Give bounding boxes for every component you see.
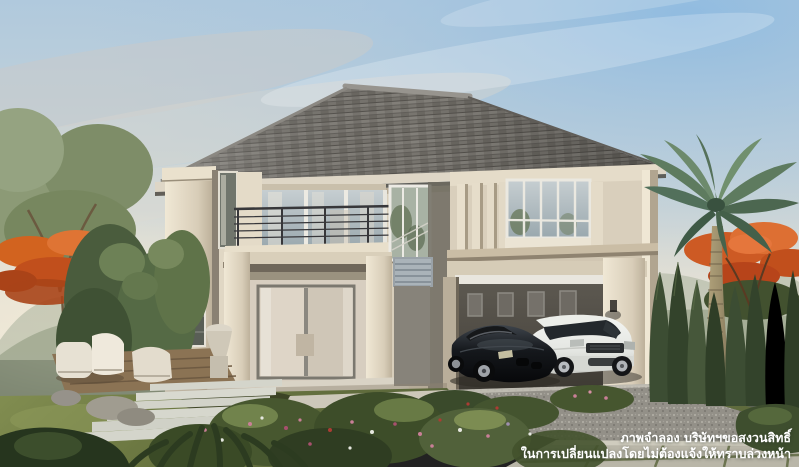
shaded-wall <box>394 286 430 386</box>
coupe-grille <box>516 358 529 366</box>
disclaimer-line-1: ภาพจำลอง บริษัทฯขอสงวนสิทธิ์ <box>521 430 791 446</box>
curtain <box>343 288 353 376</box>
curtain <box>261 288 271 376</box>
suv-headlight <box>570 339 584 347</box>
window-bay-2f <box>505 180 591 249</box>
suv-grille <box>586 343 624 353</box>
stairwell-window <box>390 186 430 260</box>
pilaster-fins <box>457 182 507 252</box>
louver-vent <box>394 258 432 286</box>
disclaimer-line-2: ในการเปลี่ยนแปลงโดยไม่ต้องแจ้งให้ทราบล่ว… <box>521 446 791 462</box>
hood-highlight <box>477 339 533 351</box>
rendering-image: ภาพจำลอง บริษัทฯขอสงวนสิทธิ์ ในการเปลี่ย… <box>0 0 799 467</box>
suv-headlight <box>624 341 635 350</box>
pilaster <box>237 172 262 252</box>
gf-sliding-door <box>258 286 354 378</box>
pilaster <box>591 182 603 250</box>
roller-header <box>455 275 603 284</box>
disclaimer-text: ภาพจำลอง บริษัทฯขอสงวนสิทธิ์ ในการเปลี่ย… <box>521 430 791 463</box>
interior-furniture <box>296 334 314 356</box>
curtain <box>312 192 324 246</box>
scene-canvas <box>0 0 799 467</box>
porch-column-right <box>366 256 392 394</box>
